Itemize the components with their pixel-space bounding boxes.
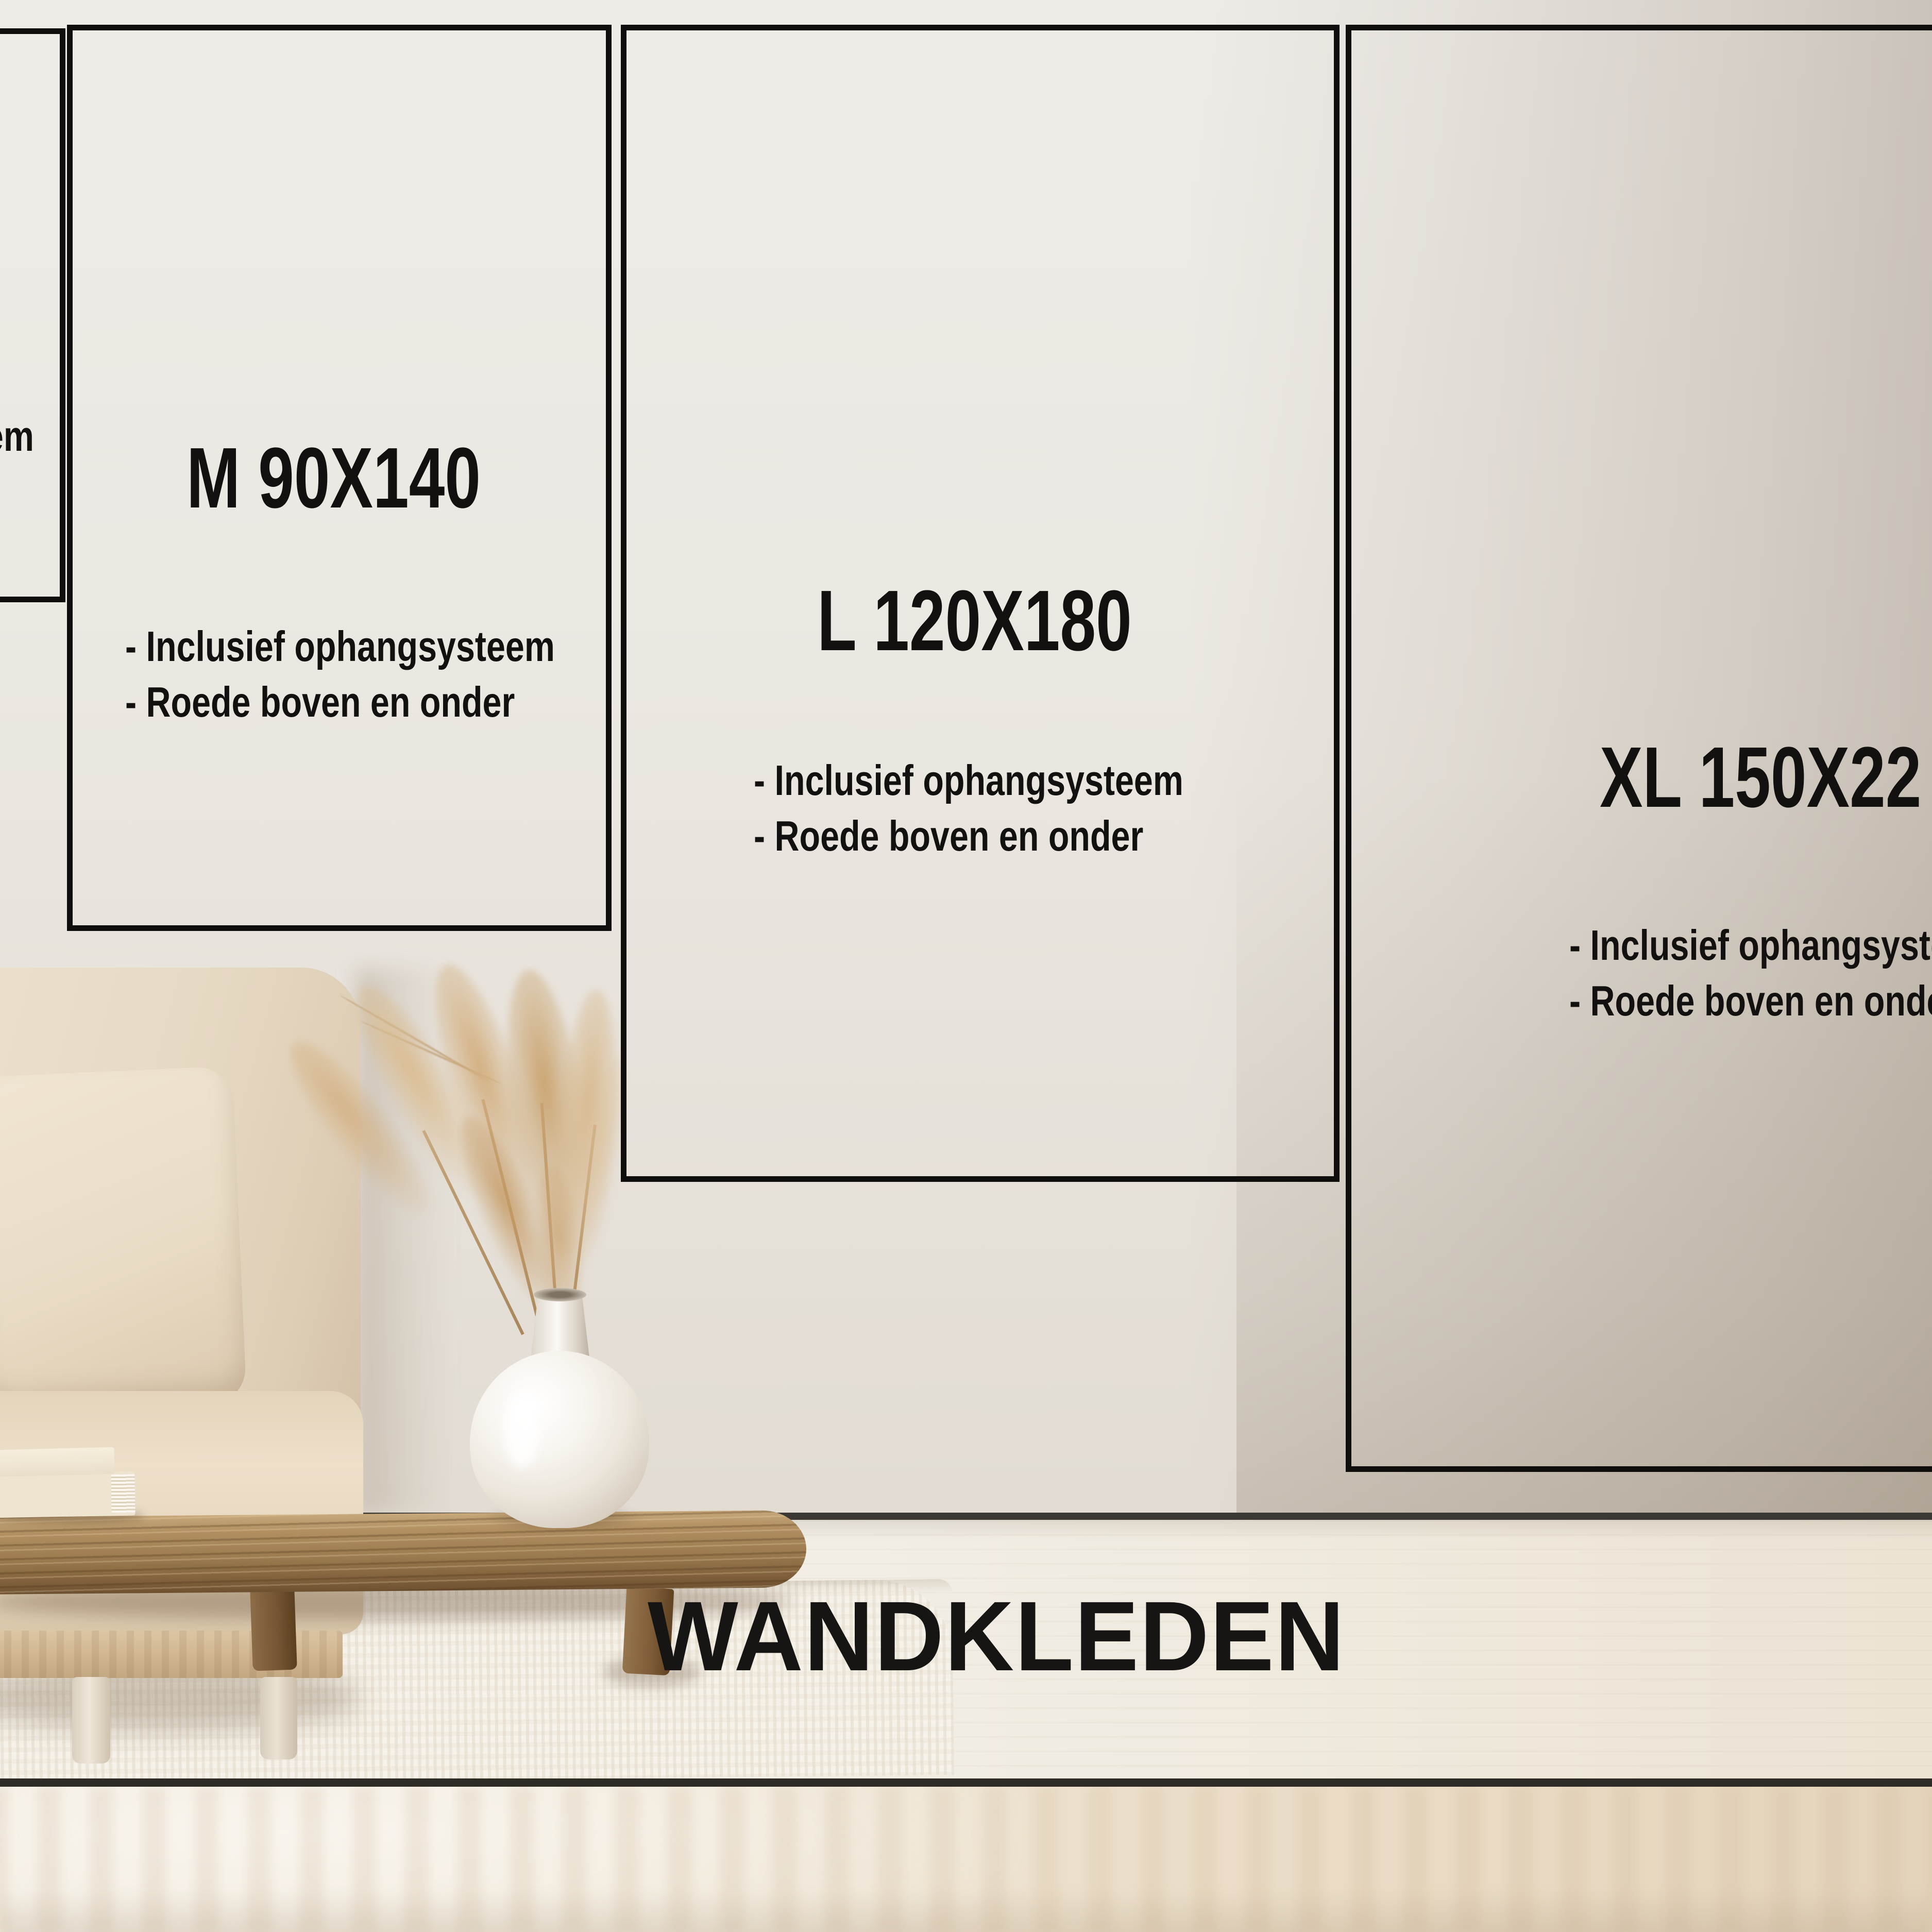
vase-highlight <box>504 1391 540 1468</box>
page-title: WANDKLEDEN <box>648 1587 1345 1686</box>
size-xl-label: XL 150X22 <box>1600 735 1921 821</box>
bullet-line: - Roede boven en onder <box>125 674 555 730</box>
sofa-leg <box>260 1677 297 1759</box>
size-s-bullets: - Inclusief ophangsysteem - Roede boven … <box>0 409 34 520</box>
size-guide-scene: - Inclusief ophangsysteem - Roede boven … <box>0 0 1932 1932</box>
size-l-label: L 120X180 <box>709 578 1240 664</box>
bullet-line: - Inclusief ophangsysteem <box>0 409 34 464</box>
bullet-line: - Roede boven en onder <box>754 808 1183 864</box>
book-pages <box>111 1474 135 1513</box>
book <box>0 1447 115 1478</box>
blurred-foreground <box>0 1787 1932 1932</box>
floor-edge-line <box>0 1778 1932 1787</box>
bullet-line: - Roede boven en onder <box>1569 973 1932 1029</box>
sofa-back-cushion <box>0 1066 247 1415</box>
foreground-bottom-shade <box>0 1890 1932 1932</box>
bullet-line: - Inclusief ophangsysteem <box>1569 918 1932 973</box>
vase <box>470 1351 649 1528</box>
size-l-bullets: - Inclusief ophangsysteem - Roede boven … <box>754 753 1183 864</box>
size-m-bullets: - Inclusief ophangsysteem - Roede boven … <box>125 619 555 730</box>
vase-mouth <box>534 1288 586 1301</box>
bullet-line: - Roede boven en onder <box>0 464 34 520</box>
bullet-line: - Inclusief ophangsysteem <box>125 619 555 674</box>
table-leg-left <box>250 1587 297 1671</box>
sofa-leg <box>72 1677 110 1764</box>
size-m-label: M 90X140 <box>133 435 533 521</box>
book <box>0 1471 135 1518</box>
size-xl-bullets: - Inclusief ophangsysteem - Roede boven … <box>1569 918 1932 1029</box>
bullet-line: - Inclusief ophangsysteem <box>754 753 1183 808</box>
